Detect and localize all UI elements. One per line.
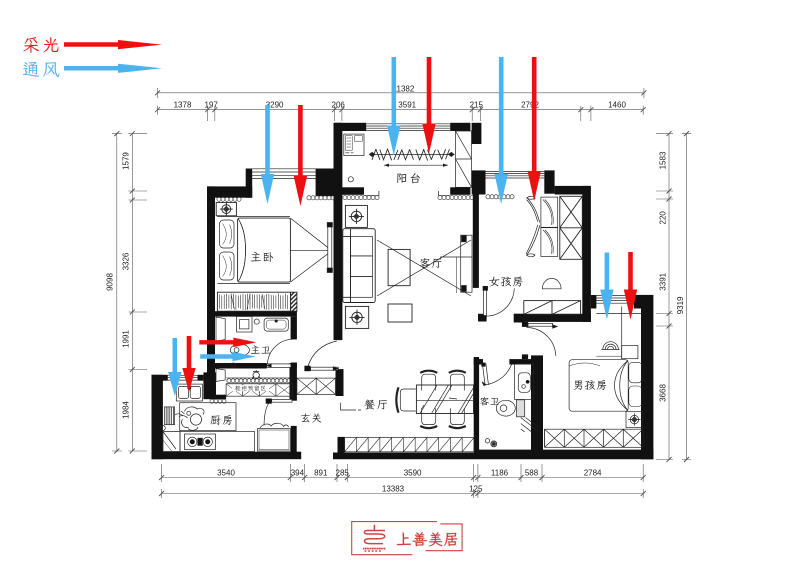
svg-text:891: 891 [314,469,328,478]
svg-text:3326: 3326 [122,252,131,270]
svg-text:3391: 3391 [658,272,667,290]
svg-text:1583: 1583 [658,151,667,169]
svg-text:9319: 9319 [676,296,685,314]
svg-text:3590: 3590 [404,469,422,478]
svg-text:125: 125 [469,485,483,494]
svg-text:285: 285 [336,469,350,478]
svg-text:1378: 1378 [174,101,192,110]
svg-text:197: 197 [205,101,219,110]
svg-text:215: 215 [470,101,484,110]
svg-text:3668: 3668 [658,384,667,402]
svg-text:1460: 1460 [608,101,626,110]
svg-text:2792: 2792 [521,101,539,110]
svg-text:2784: 2784 [584,469,602,478]
svg-text:206: 206 [332,101,346,110]
svg-text:1579: 1579 [122,152,131,170]
svg-text:3540: 3540 [217,469,235,478]
svg-text:3591: 3591 [398,101,416,110]
svg-text:1991: 1991 [122,330,131,348]
svg-text:13383: 13383 [382,485,405,494]
svg-text:394: 394 [291,469,305,478]
svg-text:9098: 9098 [106,273,115,291]
svg-text:588: 588 [525,469,539,478]
svg-text:1984: 1984 [122,401,131,419]
svg-text:220: 220 [658,211,667,225]
svg-text:1186: 1186 [491,469,509,478]
